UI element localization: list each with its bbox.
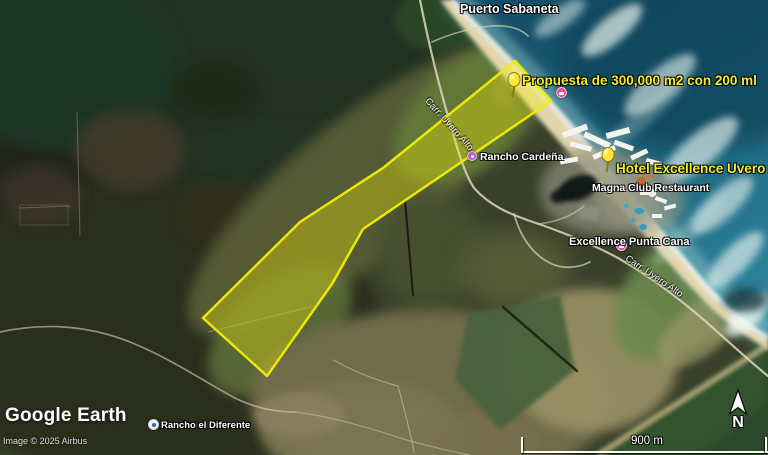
compass-north-label[interactable]: N <box>726 414 750 432</box>
copyright-text: Image © 2025 Airbus <box>3 436 87 446</box>
terrain-layer <box>0 0 768 455</box>
label-puerto-sabaneta[interactable]: Puerto Sabaneta <box>460 2 559 16</box>
place-icon[interactable] <box>148 419 159 430</box>
satellite-map[interactable]: Puerto Sabaneta Propuesta de 300,000 m2 … <box>0 0 768 455</box>
label-excellence-punta-cana[interactable]: Excellence Punta Cana <box>569 236 689 248</box>
scale-bar-tick <box>765 437 767 453</box>
pushpin-icon[interactable] <box>599 147 617 174</box>
label-propuesta[interactable]: Propuesta de 300,000 m2 con 200 ml <box>522 73 757 88</box>
google-earth-logo: Google Earth <box>5 405 127 427</box>
scale-bar-label: 900 m <box>612 435 682 447</box>
label-magna-club[interactable]: Magna Club Restaurant <box>592 182 709 194</box>
north-arrow-icon[interactable] <box>727 389 749 416</box>
label-rancho-el-diferente[interactable]: Rancho el Diferente <box>161 420 250 431</box>
label-rancho-cardena[interactable]: Rancho Cardeña <box>480 151 563 163</box>
lodging-icon[interactable] <box>556 87 567 98</box>
scale-bar <box>521 451 768 453</box>
pushpin-icon[interactable] <box>505 72 523 99</box>
scale-bar-tick <box>521 437 523 453</box>
label-hotel-excellence[interactable]: Hotel Excellence Uvero A <box>616 161 768 176</box>
